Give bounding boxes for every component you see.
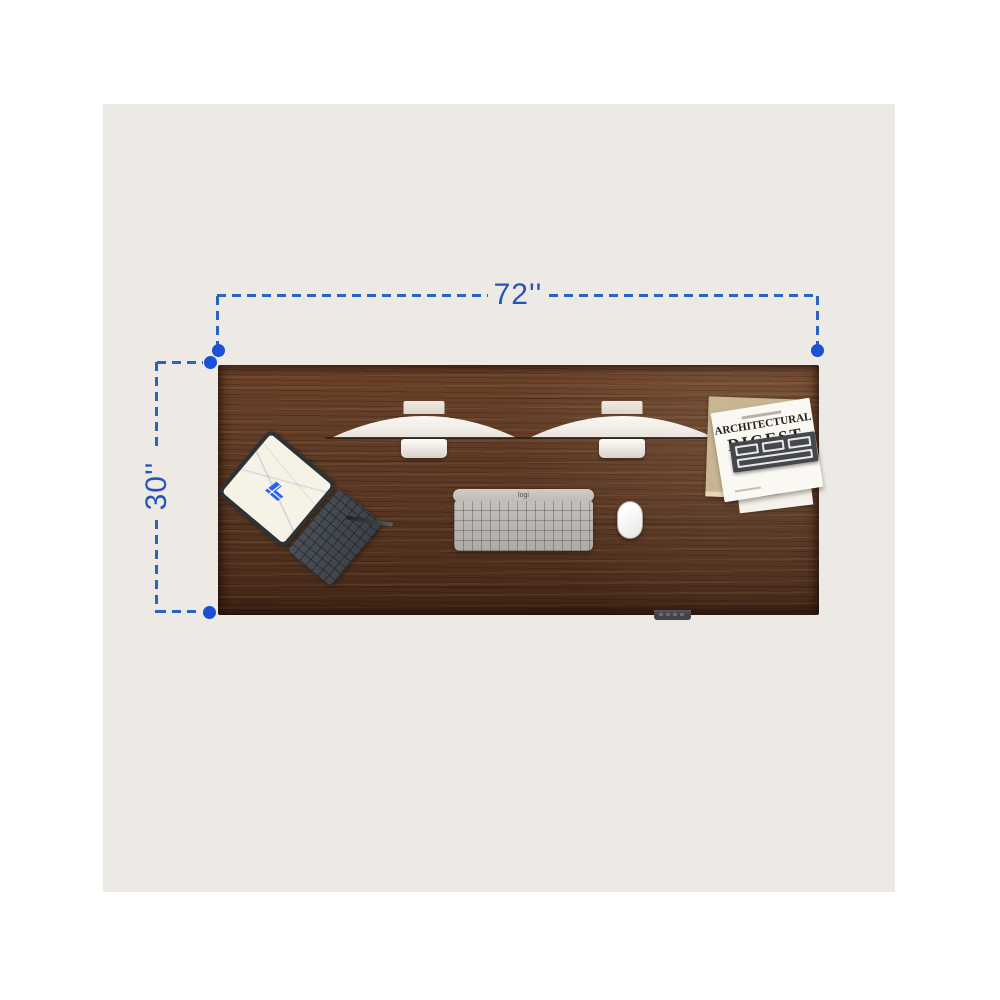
controller-buttons: [659, 613, 686, 616]
monitor-right-stand-base: [599, 439, 645, 458]
cover-art-cell: [761, 440, 785, 453]
dimension-dot-left-bottom: [203, 606, 216, 619]
width-dimension-label: 72'': [487, 278, 549, 312]
height-dimension-line-top: [155, 362, 158, 452]
monitor-right: [528, 401, 716, 459]
monitor-left: [330, 401, 518, 459]
mouse: [617, 501, 643, 539]
height-extension-line-top: [157, 361, 203, 364]
dimension-dot-top-right: [811, 344, 824, 357]
width-dimension-line-right: [549, 294, 817, 297]
keyboard: logi: [453, 489, 594, 552]
desk-surface: logi ARCHITECTURAL DIGEST: [218, 365, 819, 615]
monitor-left-body: [330, 409, 518, 439]
dimension-dot-left-top: [204, 356, 217, 369]
blueprint-logo-icon: [262, 476, 292, 505]
magazine-footer-text-line: [735, 486, 761, 492]
cover-art-cell: [735, 443, 759, 456]
monitor-right-body: [528, 409, 716, 439]
height-dimension-label: 30'': [140, 450, 174, 522]
height-extension-line-bottom: [157, 610, 202, 613]
keyboard-keys: [454, 501, 593, 551]
width-extension-line-left: [216, 296, 219, 345]
cover-art-cell: [788, 436, 812, 449]
desk-height-controller: [654, 610, 691, 620]
width-dimension-line-left: [217, 294, 488, 297]
dimension-dot-top-left: [212, 344, 225, 357]
width-extension-line-right: [816, 296, 819, 345]
height-dimension-line-bottom: [155, 520, 158, 613]
keyboard-brand-logo: logi: [453, 491, 594, 500]
monitor-left-stand-base: [401, 439, 447, 458]
